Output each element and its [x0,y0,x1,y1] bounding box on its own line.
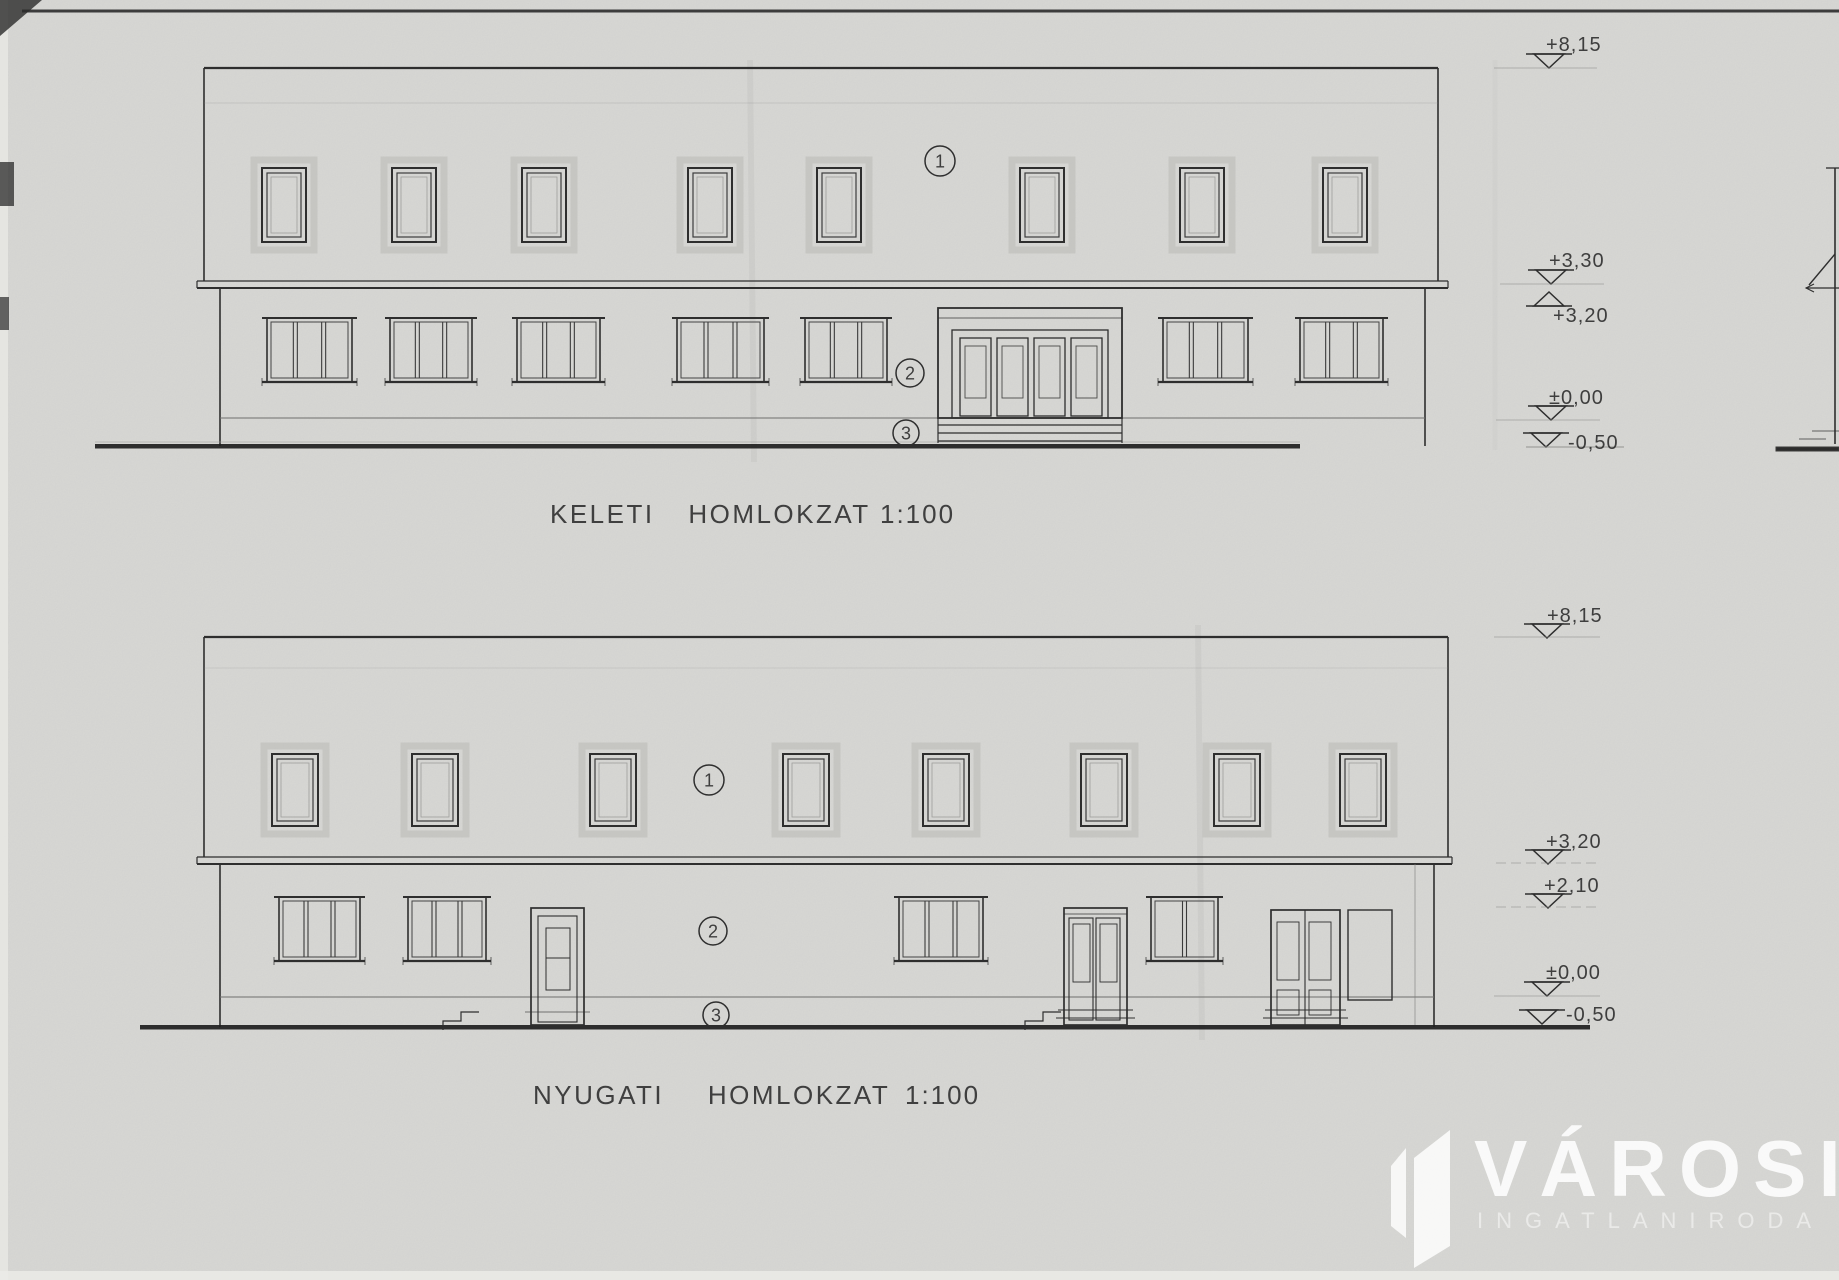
level-label: +8,15 [1547,605,1603,627]
level-label: +8,15 [1546,34,1602,56]
level-label: +3,30 [1549,250,1605,272]
level-label: ±0,00 [1546,962,1601,984]
nyugati-ground-line [140,1025,1590,1030]
level-label: +2,10 [1544,875,1600,897]
level-label: +3,20 [1553,305,1609,327]
tag-number: 3 [901,423,911,443]
level-label: -0,50 [1568,432,1619,454]
watermark-subtitle: INGATLANIRODA [1477,1208,1824,1233]
paper-crease [1198,625,1202,1040]
scan-artifact-left-1 [0,162,14,206]
keleti-ground-line [95,444,1300,449]
level-label: -0,50 [1566,1004,1617,1026]
scan-edge-bottom [0,1271,1839,1280]
watermark-brand: VÁROSI [1474,1124,1839,1213]
paper-crease [750,60,754,462]
keleti-title: KELETI HOMLOKZAT [550,499,871,529]
tag-number: 1 [935,151,945,171]
level-label: ±0,00 [1549,387,1604,409]
tag-number: 1 [704,770,714,790]
tag-number: 3 [711,1005,721,1025]
level-label: +3,20 [1546,831,1602,853]
elevation-drawing-svg: +8,15 +3,30 +3,20 ±0,00 -0,50 +8,15 +3,2… [0,0,1839,1280]
nyugati-title: NYUGATI HOMLOKZAT [533,1080,890,1110]
blueprint-scan: +8,15 +3,30 +3,20 ±0,00 -0,50 +8,15 +3,2… [0,0,1839,1280]
tag-number: 2 [905,363,915,383]
scan-artifact-left-2 [0,297,9,330]
keleti-scale: 1:100 [880,499,955,529]
fragment-ground-line [1776,447,1839,451]
nyugati-scale: 1:100 [905,1080,980,1110]
tag-number: 2 [708,921,718,941]
